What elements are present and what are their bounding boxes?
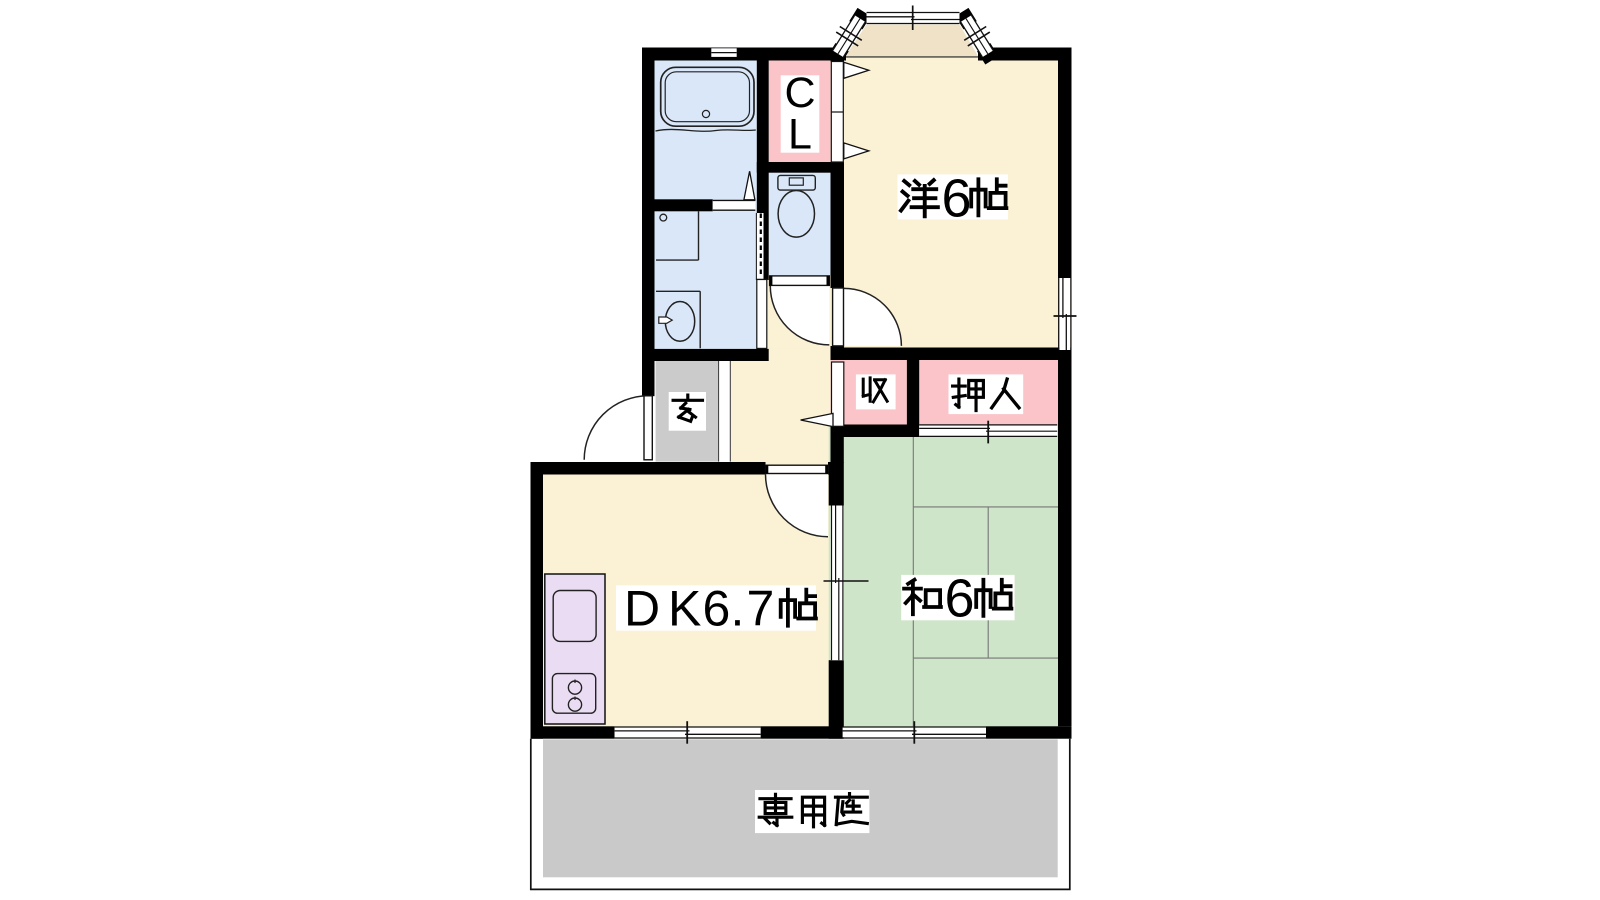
svg-text:.: .: [731, 581, 745, 637]
svg-text:L: L: [788, 111, 812, 159]
svg-text:D: D: [624, 581, 660, 637]
svg-text:6: 6: [703, 581, 731, 637]
svg-text:7: 7: [747, 581, 775, 637]
svg-text:K: K: [668, 581, 701, 637]
svg-text:C: C: [784, 69, 815, 117]
svg-text:6: 6: [942, 168, 972, 228]
svg-text:6: 6: [945, 569, 975, 629]
